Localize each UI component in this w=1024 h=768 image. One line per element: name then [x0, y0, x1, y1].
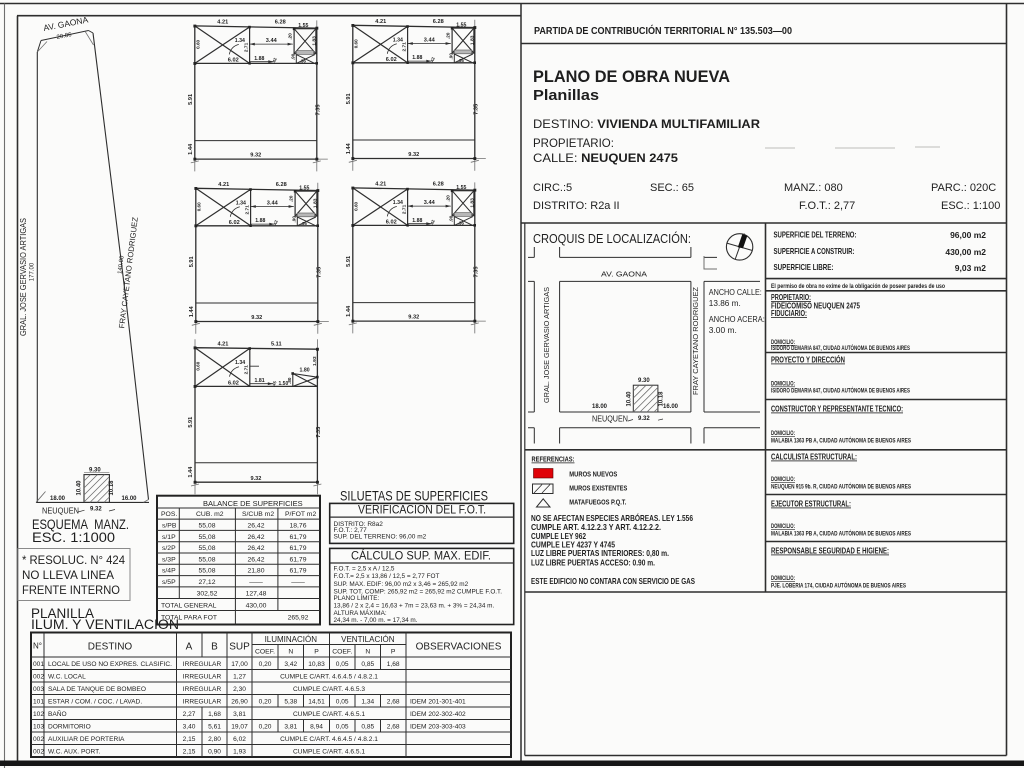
svg-text:GRAL. JOSE GERVASIO ARTIGAS: GRAL. JOSE GERVASIO ARTIGAS: [544, 287, 551, 403]
svg-text:1,68: 1,68: [208, 711, 221, 718]
svg-text:MALABIA 1363 PB A, CIUDAD AUTÓ: MALABIA 1363 PB A, CIUDAD AUTÓNOMA DE BU…: [771, 530, 911, 538]
svg-text:CROQUIS DE LOCALIZACIÓN:: CROQUIS DE LOCALIZACIÓN:: [533, 231, 691, 246]
svg-text:430,00: 430,00: [246, 603, 267, 610]
svg-text:101: 101: [33, 699, 44, 706]
svg-text:SALA DE TANQUE DE BOMBEO: SALA DE TANQUE DE BOMBEO: [48, 686, 146, 693]
svg-text:PARC.: 020C: PARC.: 020C: [931, 182, 996, 194]
svg-text:3,40: 3,40: [183, 724, 196, 731]
svg-text:DOMICILIO:: DOMICILIO:: [771, 431, 795, 437]
svg-text:9.32: 9.32: [638, 416, 650, 422]
svg-text:CIRC.:5: CIRC.:5: [533, 182, 572, 194]
svg-text:2.71: 2.71: [244, 365, 250, 375]
svg-text:FIDUCIARIO:: FIDUCIARIO:: [771, 309, 807, 318]
svg-text:MATAFUEGOS P.Q.T.: MATAFUEGOS P.Q.T.: [569, 498, 626, 507]
svg-text:13,86 / 2 x 2,4 = 16,63 + 7m =: 13,86 / 2 x 2,4 = 16,63 + 7m = 23,63 m. …: [334, 603, 495, 610]
svg-text:0.60: 0.60: [196, 361, 201, 370]
svg-text:177.00: 177.00: [30, 262, 36, 281]
svg-text:61,79: 61,79: [289, 545, 306, 552]
svg-text:CUMPLE C/ART. 4.6.5.1: CUMPLE C/ART. 4.6.5.1: [293, 749, 365, 756]
svg-text:SILUETAS DE SUPERFICIES: SILUETAS DE SUPERFICIES: [340, 489, 488, 504]
svg-text:IRREGULAR: IRREGULAR: [183, 674, 222, 681]
svg-text:002: 002: [33, 674, 44, 681]
svg-text:2,15: 2,15: [183, 736, 196, 743]
svg-text:1,93: 1,93: [233, 749, 246, 756]
svg-text:0,90: 0,90: [208, 749, 221, 756]
svg-text:CUB. m2: CUB. m2: [196, 511, 224, 518]
svg-text:NO LLEVA LINEA: NO LLEVA LINEA: [22, 568, 114, 582]
svg-text:ANCHO CALLE:: ANCHO CALLE:: [709, 288, 762, 297]
svg-text:TOTAL GENERAL: TOTAL GENERAL: [161, 603, 217, 610]
svg-text:8,94: 8,94: [310, 724, 323, 731]
svg-text:6.02: 6.02: [228, 381, 239, 387]
svg-text:SUPERFICIE A CONSTRUIR:: SUPERFICIE A CONSTRUIR:: [774, 246, 855, 256]
svg-text:P: P: [391, 649, 396, 656]
svg-text:102: 102: [33, 711, 44, 718]
svg-text:LOCAL DE USO NO EXPRES. CLASIF: LOCAL DE USO NO EXPRES. CLASIFIC.: [48, 661, 172, 668]
svg-text:7.35: 7.35: [316, 427, 322, 438]
svg-text:9,03 m2: 9,03 m2: [955, 263, 986, 273]
svg-text:CUMPLE C/ART. 4.6.5.1: CUMPLE C/ART. 4.6.5.1: [293, 711, 365, 718]
svg-text:18.00: 18.00: [50, 496, 66, 502]
svg-text:IDEM 203-303-403: IDEM 203-303-403: [410, 724, 466, 731]
svg-text:ALTURA MÁXIMA:: ALTURA MÁXIMA:: [334, 608, 387, 617]
svg-text:DOMICILIO:: DOMICILIO:: [771, 477, 795, 483]
svg-text:CONSTRUCTOR Y REPRESENTANTE TE: CONSTRUCTOR Y REPRESENTANTE TECNICO:: [771, 405, 903, 414]
svg-text:1.81: 1.81: [255, 378, 265, 384]
svg-text:VENTILACIÓN: VENTILACIÓN: [341, 635, 395, 644]
svg-text:CUMPLE C/ART. 4.6.4.5 / 4.8.2.: CUMPLE C/ART. 4.6.4.5 / 4.8.2.1: [280, 736, 378, 743]
svg-text:5,38: 5,38: [284, 699, 297, 706]
svg-text:0,85: 0,85: [361, 661, 374, 668]
svg-text:24,34 m. - 7,00 m. = 17,34 m.: 24,34 m. - 7,00 m. = 17,34 m.: [334, 617, 418, 624]
svg-text:2,80: 2,80: [208, 736, 221, 743]
svg-text:P/FOT m2: P/FOT m2: [285, 511, 316, 518]
svg-text:14,51: 14,51: [308, 699, 325, 706]
svg-text:RESPONSABLE SEGURIDAD E HIGIEN: RESPONSABLE SEGURIDAD E HIGIENE:: [771, 547, 889, 556]
svg-text:MALABIA 1363 PB A, CIUDAD AUTÓ: MALABIA 1363 PB A, CIUDAD AUTÓNOMA DE BU…: [771, 437, 911, 445]
svg-text:FRAY CAYETANO RODRIGUEZ: FRAY CAYETANO RODRIGUEZ: [693, 286, 700, 395]
svg-text:CALCULISTA ESTRUCTURAL:: CALCULISTA ESTRUCTURAL:: [771, 453, 857, 462]
svg-text:302,52: 302,52: [197, 591, 218, 598]
svg-text:5,61: 5,61: [208, 724, 221, 731]
svg-text:26,90: 26,90: [231, 699, 248, 706]
svg-text:55,08: 55,08: [198, 545, 215, 552]
svg-text:3,81: 3,81: [233, 711, 246, 718]
svg-text:TOTAL PARA FOT: TOTAL PARA FOT: [161, 615, 217, 622]
svg-text:SUPERFICIE LIBRE:: SUPERFICIE LIBRE:: [774, 262, 834, 272]
svg-text:10.18: 10.18: [109, 480, 115, 496]
svg-text:N: N: [288, 649, 293, 656]
svg-text:18.00: 18.00: [592, 404, 608, 410]
svg-text:s/4P: s/4P: [162, 568, 176, 575]
svg-text:EJECUTOR ESTRUCTURAL:: EJECUTOR ESTRUCTURAL:: [771, 500, 851, 509]
svg-text:16.00: 16.00: [663, 404, 679, 410]
svg-text:265,92: 265,92: [288, 615, 309, 622]
svg-text:NEUQUEN: NEUQUEN: [592, 415, 628, 424]
svg-text:* RESOLUC. N° 424: * RESOLUC. N° 424: [22, 553, 125, 567]
svg-text:F.O.T.: 2,77: F.O.T.: 2,77: [799, 200, 855, 212]
svg-text:1.93: 1.93: [312, 356, 318, 366]
svg-text:9.32: 9.32: [251, 476, 262, 482]
svg-text:10,83: 10,83: [308, 661, 325, 668]
svg-text:26,42: 26,42: [247, 556, 264, 563]
svg-text:3,42: 3,42: [284, 661, 297, 668]
svg-text:POS.: POS.: [161, 511, 177, 518]
svg-text:Planillas: Planillas: [533, 87, 599, 104]
svg-text:17,00: 17,00: [231, 661, 248, 668]
svg-text:61,79: 61,79: [289, 534, 306, 541]
svg-text:SUP: SUP: [229, 642, 250, 653]
svg-text:26,42: 26,42: [247, 534, 264, 541]
svg-text:0,20: 0,20: [259, 699, 272, 706]
svg-text:DESTINO: DESTINO: [88, 642, 133, 653]
svg-text:26,42: 26,42: [247, 523, 264, 530]
svg-text:COEF.: COEF.: [332, 649, 352, 656]
svg-text:0,20: 0,20: [259, 724, 272, 731]
svg-text:s/3P: s/3P: [162, 556, 176, 563]
svg-text:55,08: 55,08: [198, 568, 215, 575]
svg-text:REFERENCIAS:: REFERENCIAS:: [532, 455, 575, 464]
svg-text:3,81: 3,81: [284, 724, 297, 731]
svg-text:MUROS EXISTENTES: MUROS EXISTENTES: [569, 484, 627, 493]
svg-text:F.O.T.= 2,5 x 13,86 / 12,5 = 2: F.O.T.= 2,5 x 13,86 / 12,5 = 2,77 FOT: [334, 573, 440, 580]
svg-text:13.86 m.: 13.86 m.: [709, 299, 741, 308]
svg-text:2,15: 2,15: [183, 749, 196, 756]
svg-text:127,48: 127,48: [246, 591, 267, 598]
svg-text:55,08: 55,08: [198, 556, 215, 563]
svg-text:W.C. LOCAL: W.C. LOCAL: [48, 674, 86, 681]
svg-text:61,79: 61,79: [289, 568, 306, 575]
svg-text:4.21: 4.21: [218, 341, 229, 347]
svg-text:IRREGULAR: IRREGULAR: [183, 686, 222, 693]
svg-text:DOMICILIO:: DOMICILIO:: [771, 524, 795, 530]
svg-text:——: ——: [249, 579, 263, 586]
svg-text:DORMITORIO: DORMITORIO: [48, 724, 91, 731]
svg-text:NEUQUEN: NEUQUEN: [42, 506, 79, 516]
svg-text:BALANCE DE SUPERFICIES: BALANCE DE SUPERFICIES: [203, 499, 303, 508]
svg-text:W.C. AUX. PORT.: W.C. AUX. PORT.: [48, 749, 100, 756]
svg-text:PJE. LOBERIA 174, CIUDAD AUTÓN: PJE. LOBERIA 174, CIUDAD AUTÓNOMA DE BUE…: [771, 582, 906, 590]
svg-text:19,07: 19,07: [231, 724, 248, 731]
svg-text:AV. GAONA: AV. GAONA: [601, 270, 647, 279]
svg-text:A: A: [186, 642, 193, 653]
svg-text:6,02: 6,02: [233, 736, 246, 743]
svg-text:26,42: 26,42: [247, 545, 264, 552]
svg-text:PLANO LÍMITE:: PLANO LÍMITE:: [334, 593, 380, 602]
svg-text:003: 003: [33, 686, 44, 693]
svg-text:18,76: 18,76: [289, 523, 306, 530]
svg-text:ESTAR / COM. / COC. / LAVAD.: ESTAR / COM. / COC. / LAVAD.: [48, 699, 142, 706]
svg-text:3.00 m.: 3.00 m.: [709, 326, 737, 335]
svg-text:61,79: 61,79: [289, 556, 306, 563]
svg-text:AUXILIAR DE PORTERIA: AUXILIAR DE PORTERIA: [48, 736, 125, 743]
svg-text:CUMPLE C/ART. 4.6.5.3: CUMPLE C/ART. 4.6.5.3: [293, 686, 365, 693]
svg-text:DESTINO: VIVIENDA MULTIFAMILIA: DESTINO: VIVIENDA MULTIFAMILIAR: [533, 119, 761, 131]
svg-text:10.40: 10.40: [627, 391, 633, 407]
svg-text:N°: N°: [33, 642, 42, 651]
svg-text:NEUQUEN 915 9b. R, CIUDAD AUTÓ: NEUQUEN 915 9b. R, CIUDAD AUTÓNOMA DE BU…: [771, 483, 911, 491]
svg-text:S/CUB m2: S/CUB m2: [242, 511, 274, 518]
svg-text:s/PB: s/PB: [162, 523, 177, 530]
svg-text:PROYECTO Y DIRECCIÓN: PROYECTO Y DIRECCIÓN: [771, 356, 845, 365]
svg-text:——: ——: [291, 579, 305, 586]
svg-text:.80: .80: [287, 377, 292, 384]
svg-text:IDEM 202-302-402: IDEM 202-302-402: [410, 711, 466, 718]
svg-text:B: B: [211, 642, 218, 653]
svg-text:F.O.T. = 2,5 x A / 12,5: F.O.T. = 2,5 x A / 12,5: [334, 565, 395, 572]
svg-text:PARTIDA DE CONTRIBUCIÓN TERRIT: PARTIDA DE CONTRIBUCIÓN TERRITORIAL N° 1…: [534, 24, 792, 37]
svg-text:001: 001: [33, 661, 44, 668]
svg-text:002: 002: [33, 749, 44, 756]
svg-text:0,20: 0,20: [259, 661, 272, 668]
svg-text:21,80: 21,80: [247, 568, 264, 575]
svg-text:FRENTE INTERNO: FRENTE INTERNO: [22, 583, 120, 597]
svg-text:s/2P: s/2P: [162, 545, 176, 552]
svg-text:ESC. 1:1000: ESC. 1:1000: [32, 530, 115, 545]
svg-text:9.30: 9.30: [638, 378, 650, 384]
svg-text:PROPIETARIO:: PROPIETARIO:: [533, 138, 614, 150]
svg-text:1.80: 1.80: [300, 368, 310, 374]
svg-text:2,68: 2,68: [387, 724, 400, 731]
svg-text:1,27: 1,27: [233, 674, 246, 681]
svg-text:IRREGULAR: IRREGULAR: [183, 661, 222, 668]
svg-text:s/5P: s/5P: [162, 579, 176, 586]
svg-text:2,68: 2,68: [387, 699, 400, 706]
svg-text:PLANO DE OBRA NUEVA: PLANO DE OBRA NUEVA: [533, 68, 730, 86]
svg-text:SEC.: 65: SEC.: 65: [650, 182, 694, 194]
svg-text:El permiso de obra no exime de: El permiso de obra no exime de la obliga…: [771, 284, 945, 290]
svg-text:LUZ LIBRE PUERTAS ACCESO: 0.90: LUZ LIBRE PUERTAS ACCESO: 0.90 m.: [531, 557, 655, 567]
svg-text:1,68: 1,68: [387, 661, 400, 668]
svg-text:5.11: 5.11: [271, 341, 282, 347]
svg-text:27,12: 27,12: [198, 579, 215, 586]
svg-text:9.32: 9.32: [90, 507, 102, 513]
svg-text:N: N: [365, 649, 370, 656]
svg-text:OBSERVACIONES: OBSERVACIONES: [416, 642, 502, 653]
svg-text:1.44: 1.44: [188, 466, 194, 478]
svg-text:GRAL. JOSE GERVASIO ARTIGAS: GRAL. JOSE GERVASIO ARTIGAS: [18, 218, 28, 336]
svg-text:16.00: 16.00: [122, 496, 138, 502]
svg-text:002: 002: [33, 736, 44, 743]
svg-text:0,05: 0,05: [336, 661, 349, 668]
svg-text:VERIFICACIÓN DEL F.O.T.: VERIFICACIÓN DEL F.O.T.: [358, 504, 486, 517]
svg-text:CALLE: NEUQUEN 2475: CALLE: NEUQUEN 2475: [533, 153, 679, 165]
svg-text:DOMICILIO:: DOMICILIO:: [771, 382, 795, 388]
svg-text:DOMICILIO:: DOMICILIO:: [771, 576, 795, 582]
svg-text:430,00 m2: 430,00 m2: [945, 247, 986, 257]
svg-text:MUROS NUEVOS: MUROS NUEVOS: [569, 470, 617, 479]
svg-text:96,00 m2: 96,00 m2: [950, 230, 986, 240]
svg-text:ANCHO ACERA:: ANCHO ACERA:: [709, 315, 765, 324]
svg-text:COEF.: COEF.: [255, 649, 275, 656]
svg-text:0,85: 0,85: [361, 724, 374, 731]
svg-text:SUP. DEL TERRENO: 96,00 m2: SUP. DEL TERRENO: 96,00 m2: [334, 534, 427, 541]
svg-text:55,08: 55,08: [198, 534, 215, 541]
svg-text:55,08: 55,08: [198, 523, 215, 530]
svg-text:P: P: [314, 649, 319, 656]
svg-text:0,05: 0,05: [336, 724, 349, 731]
svg-text:IRREGULAR: IRREGULAR: [183, 699, 222, 706]
svg-text:ESTE EDIFICIO NO CONTARA CON S: ESTE EDIFICIO NO CONTARA CON SERVICIO DE…: [531, 576, 695, 586]
svg-text:ILUMINACIÓN: ILUMINACIÓN: [265, 635, 318, 644]
svg-text:5.91: 5.91: [188, 417, 194, 428]
svg-text:1,34: 1,34: [361, 699, 374, 706]
svg-text:CUMPLE C/ART. 4.6.4.5 / 4.8.2.: CUMPLE C/ART. 4.6.4.5 / 4.8.2.1: [280, 674, 378, 681]
svg-text:SUPERFICIE DEL TERRENO:: SUPERFICIE DEL TERRENO:: [774, 230, 857, 240]
svg-text:BAÑO: BAÑO: [48, 709, 67, 718]
svg-text:s/1P: s/1P: [162, 534, 176, 541]
svg-text:10.40: 10.40: [77, 480, 83, 496]
svg-text:ESC.: 1:100: ESC.: 1:100: [941, 200, 1000, 212]
svg-text:2,30: 2,30: [233, 686, 246, 693]
svg-text:CÁLCULO SUP. MAX. EDIF.: CÁLCULO SUP. MAX. EDIF.: [351, 550, 491, 563]
svg-text:IDEM 201-301-401: IDEM 201-301-401: [410, 699, 466, 706]
svg-text:2,27: 2,27: [183, 711, 196, 718]
svg-text:MANZ.: 080: MANZ.: 080: [784, 182, 843, 194]
svg-text:DISTRITO: R2a II: DISTRITO: R2a II: [533, 200, 620, 212]
svg-text:SUP. MAX. EDIF: 96,00 m2 x 3,4: SUP. MAX. EDIF: 96,00 m2 x 3,46 = 265,92…: [334, 581, 469, 588]
svg-text:ISIDORO DEMARIA 847, CIUDAD AU: ISIDORO DEMARIA 847, CIUDAD AUTÓNOMA DE …: [771, 344, 910, 352]
svg-text:ISIDORO DEMARIA 847, CIUDAD AU: ISIDORO DEMARIA 847, CIUDAD AUTÓNOMA DE …: [771, 387, 910, 395]
svg-text:0,05: 0,05: [336, 699, 349, 706]
svg-text:103: 103: [33, 724, 44, 731]
